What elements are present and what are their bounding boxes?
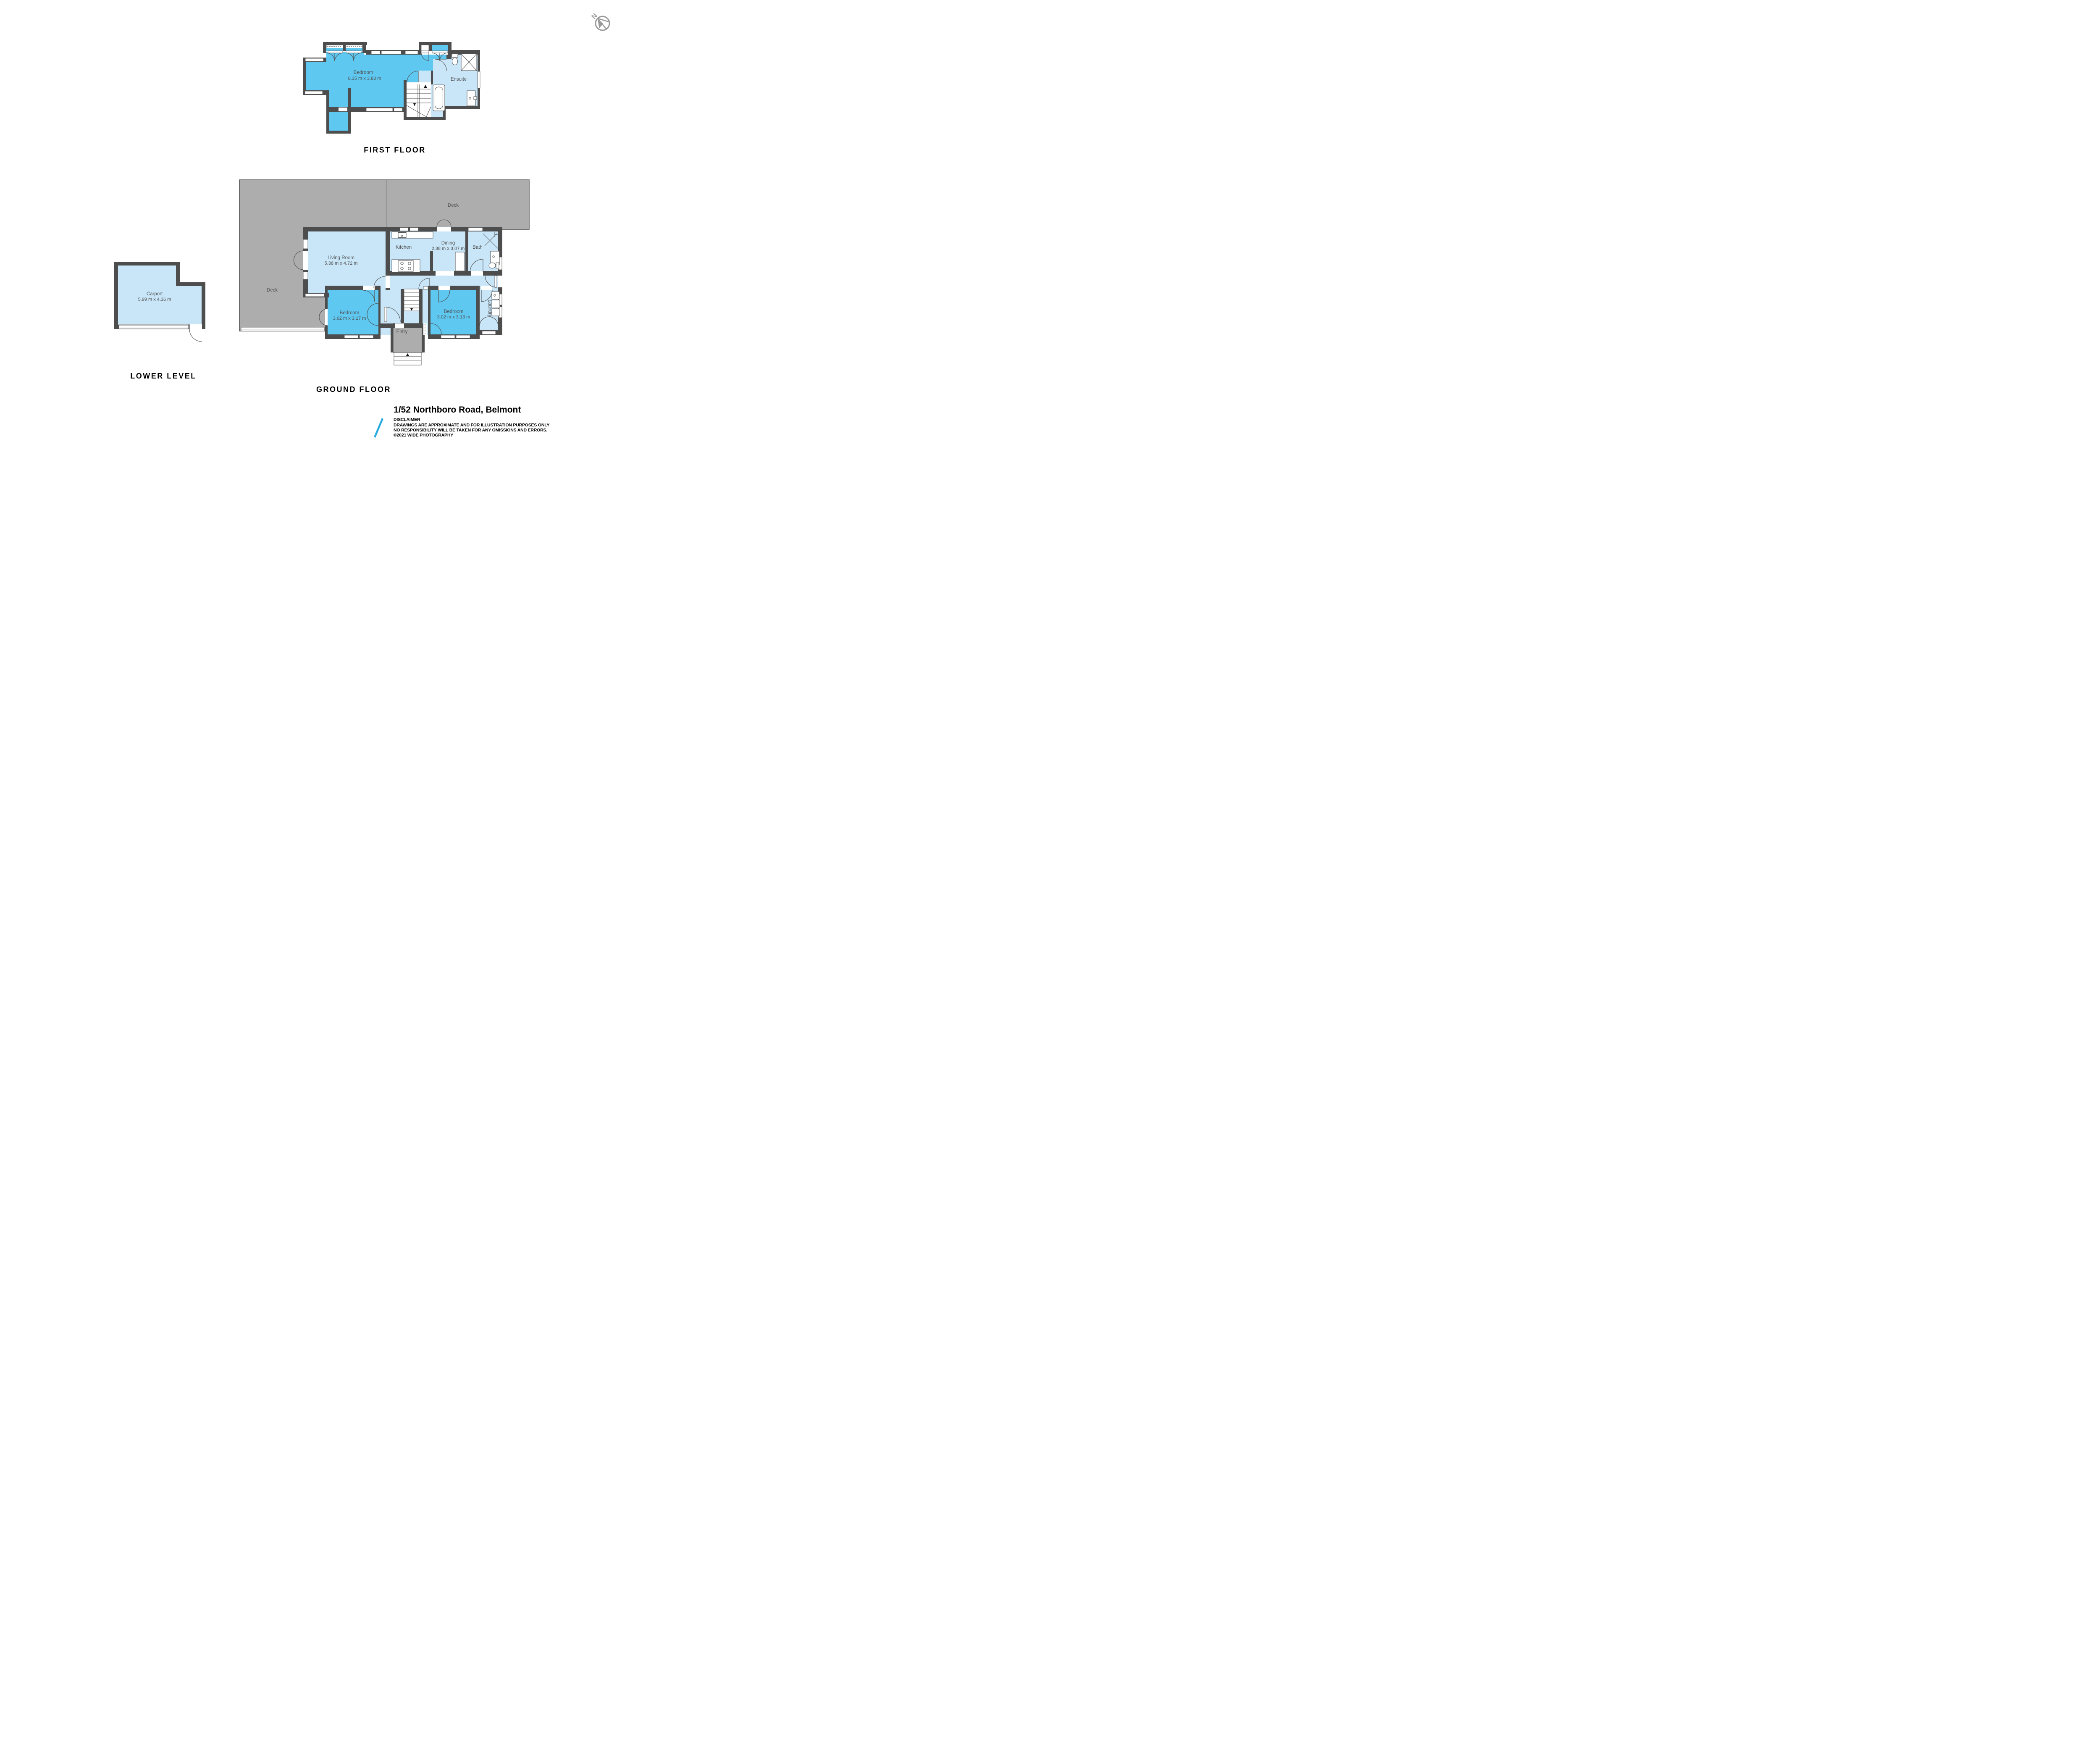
door-gap [438,286,450,290]
stairs [404,289,419,311]
window [305,294,324,297]
window [482,331,496,334]
door-gap [498,276,502,287]
first-closet-4 [432,45,448,51]
laundry-bench [492,300,500,308]
first-closet-1-fill [326,48,343,51]
front-door-leaf [384,307,387,321]
window [303,239,308,249]
door-gap [395,323,404,328]
north-compass: N [590,12,609,30]
copyright-line: ©2021 WIDE PHOTOGRAPHY [394,433,453,438]
toilet-icon [489,263,496,268]
window-sill [422,51,428,53]
footer: 1/52 Northboro Road, Belmont DISCLAIMER … [375,405,549,438]
disclaimer-line1: DRAWINGS ARE APPROXIMATE AND FOR ILLUSTR… [394,423,549,428]
window [303,272,308,279]
door-gap [303,251,308,270]
back-door-leaf [495,276,497,287]
accent-slash [375,418,383,437]
window [344,335,358,338]
window [410,228,418,231]
address-title: 1/52 Northboro Road, Belmont [394,405,521,415]
door-gap [481,286,492,290]
deck-top-label: Deck [448,203,459,208]
first-floor-title: FIRST FLOOR [364,146,426,154]
lower-level-plan: Carport 5.99 m x 4.36 m LOWER LEVEL [114,262,205,380]
first-bedroom-extension [329,110,348,131]
window [468,228,483,231]
toilet-tank-icon [452,54,458,58]
first-bedroom-label: Bedroom [354,70,373,75]
window [305,91,323,94]
bedroom-left-label: Bedroom [340,310,360,315]
fridge-icon [455,252,465,271]
dining-label: Dining [441,241,455,246]
ground-floor-title: GROUND FLOOR [316,385,391,394]
window-sill [346,51,361,53]
toilet-icon [452,58,458,65]
window [381,51,401,54]
first-stair-landing [418,71,431,82]
ground-floor-stairs [404,289,419,311]
entry-steps [394,352,421,365]
first-floor-plan: Bedroom 8.35 m x 3.83 m Ensuite FIRST FL… [303,42,480,154]
first-floor-stairs [407,84,431,117]
door-gap [386,276,390,288]
deck-left-label: Deck [267,288,278,293]
door-gap [471,271,483,276]
laundry-label: Laundry [487,300,492,317]
window [441,335,455,338]
bedroom-right-label: Bedroom [444,309,464,314]
stove-icon [398,260,413,271]
window-sill [328,51,343,53]
entry-label: Entry [396,329,408,334]
window [305,58,323,61]
stairs [407,84,431,117]
door-gap [437,227,451,231]
floorplan-page: N [0,0,630,441]
window [394,108,402,111]
kitchen-label: Kitchen [396,245,412,250]
laundry-bench [492,309,500,316]
garage-opening [119,324,189,329]
first-ensuite-label: Ensuite [451,77,467,82]
window [478,71,480,88]
window [371,51,380,54]
window-sill [432,51,448,53]
living-room-dims: 5.38 m x 4.72 m [325,261,358,266]
vanity-handle-icon [474,97,477,100]
step [394,361,421,365]
dining-dims: 2.38 m x 3.07 m [432,246,465,251]
disclaimer-line2: NO RESPONSIBILITY WILL BE TAKEN FOR ANY … [394,428,547,433]
window [360,335,373,338]
bathtub-inner-icon [435,87,443,109]
first-closet-3 [421,45,429,51]
lower-level-title: LOWER LEVEL [130,372,197,380]
toilet-tank-icon [496,262,499,269]
step [394,357,421,361]
window [423,287,428,289]
floorplan-canvas: N [0,0,630,441]
ground-floor-plan: Deck Deck Living Room 5.38 m x 4.72 m Ki… [239,180,529,394]
window [456,335,470,338]
door-gap [189,324,202,329]
window [400,228,408,231]
first-closet-2-fill [346,48,362,51]
living-room-label: Living Room [328,255,354,260]
opening [436,271,454,276]
door-gap [363,286,375,290]
window [405,51,418,54]
disclaimer-title: DISCLAIMER [394,417,420,422]
carport-label: Carport [147,292,163,297]
window [366,108,393,111]
door-gap [339,108,347,111]
bath-label: Bath [472,245,483,250]
door-gap [325,309,328,326]
bedroom-right-dims: 3.02 m x 3.13 m [437,315,470,320]
carport-dims: 5.99 m x 4.36 m [138,297,171,302]
bedroom-left-dims: 3.62 m x 3.17 m [333,316,366,321]
first-bedroom-dims: 8.35 m x 3.83 m [348,76,381,81]
